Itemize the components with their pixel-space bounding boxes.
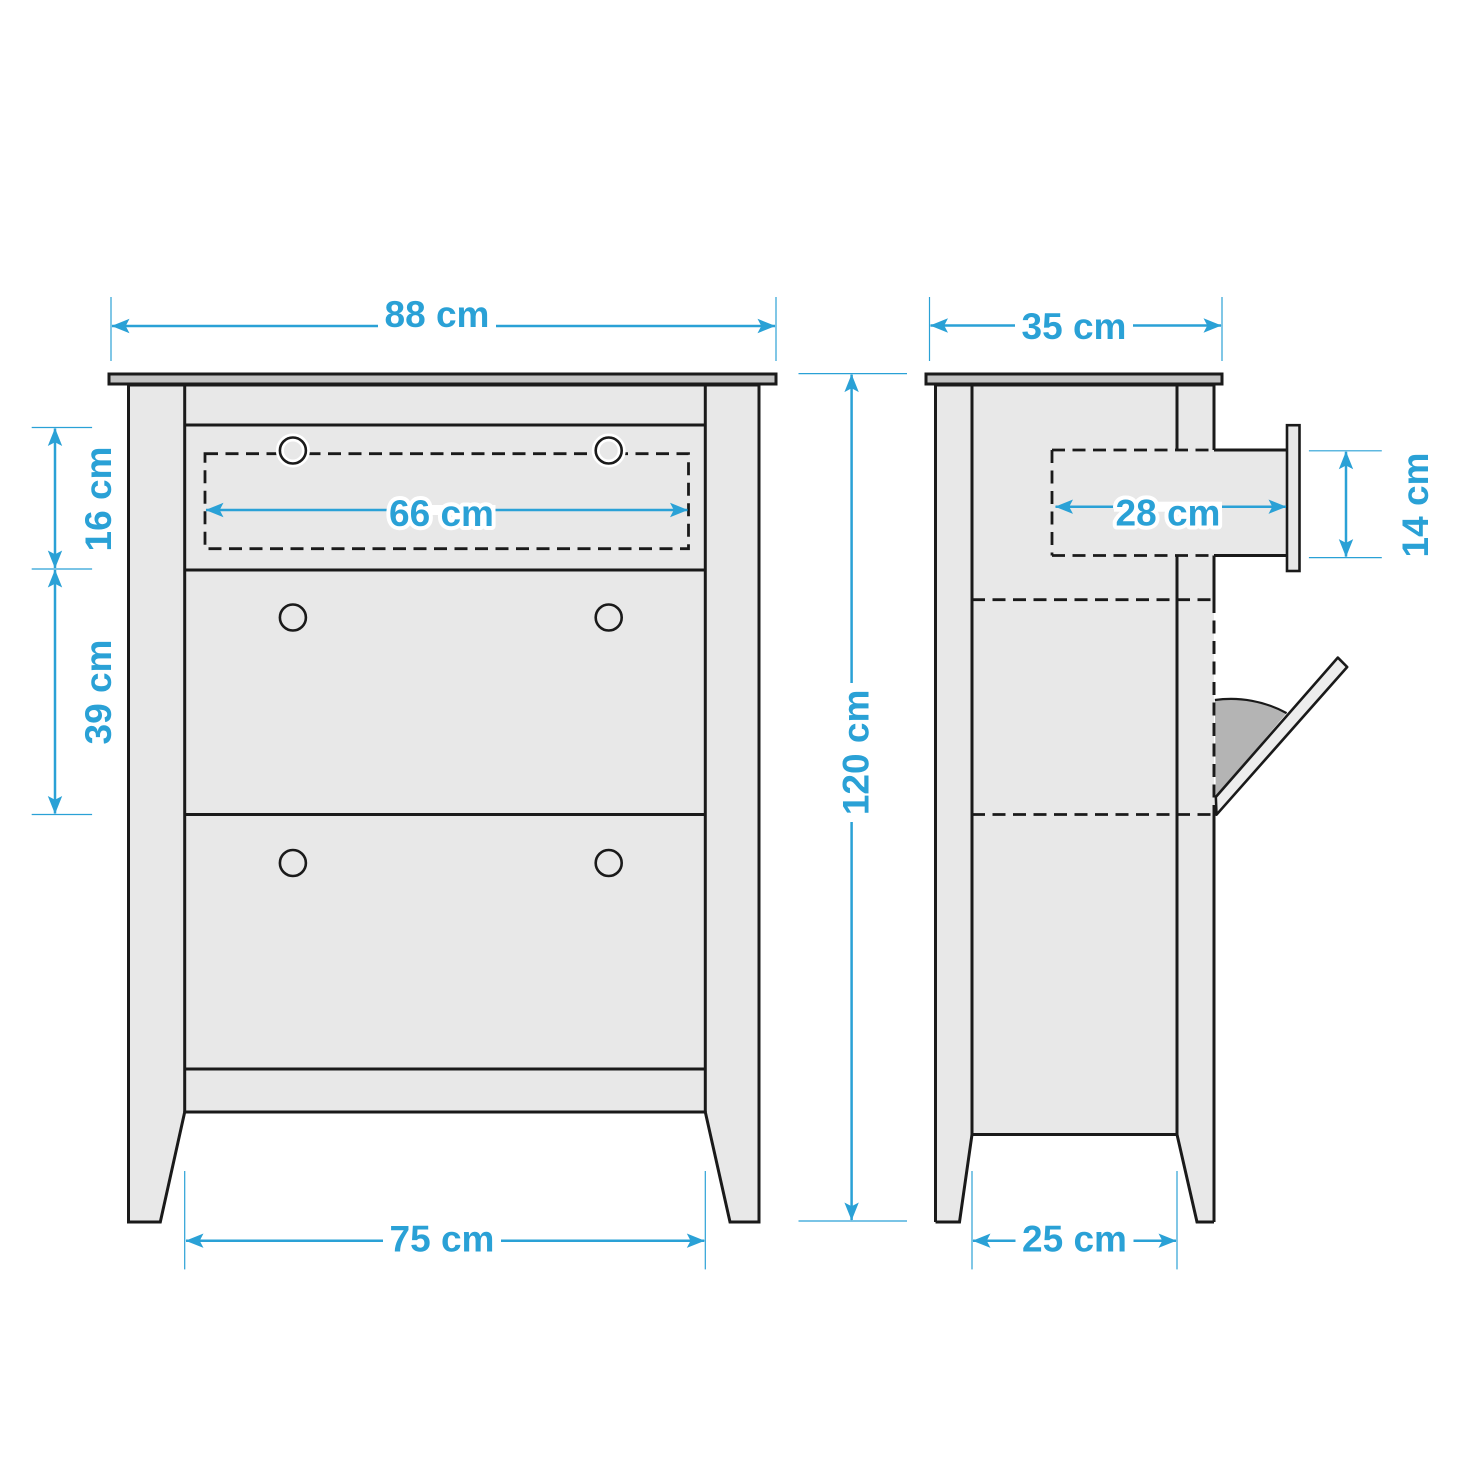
svg-text:120 cm: 120 cm <box>835 690 876 816</box>
svg-text:25 cm: 25 cm <box>1022 1219 1127 1260</box>
svg-text:35 cm: 35 cm <box>1022 306 1127 347</box>
svg-text:66 cm: 66 cm <box>389 493 494 534</box>
svg-text:16 cm: 16 cm <box>78 447 119 552</box>
svg-text:14 cm: 14 cm <box>1395 453 1436 558</box>
svg-text:88 cm: 88 cm <box>385 294 490 335</box>
svg-text:39 cm: 39 cm <box>78 640 119 745</box>
svg-text:28 cm: 28 cm <box>1116 493 1221 534</box>
svg-text:75 cm: 75 cm <box>390 1219 495 1260</box>
